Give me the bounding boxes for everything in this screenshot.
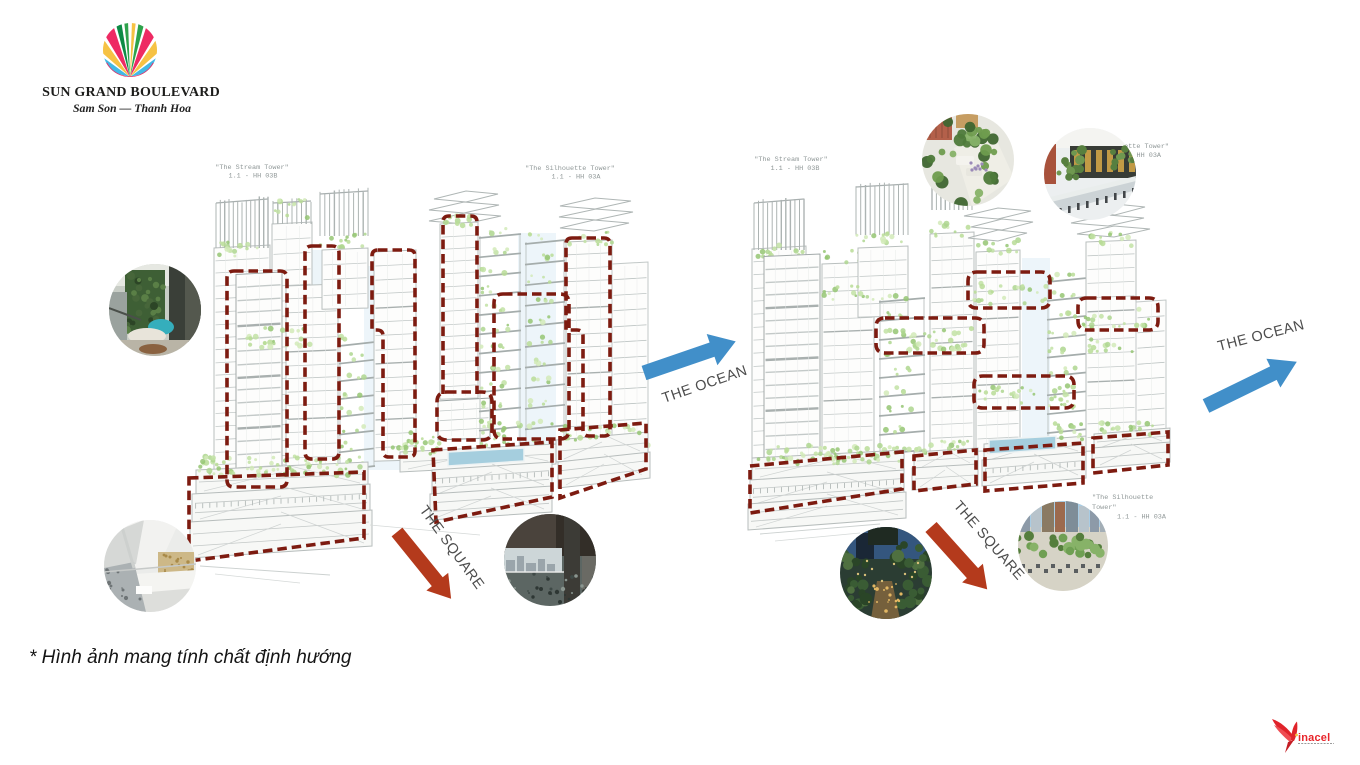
svg-text:Sam Son — Thanh Hoa: Sam Son — Thanh Hoa xyxy=(73,101,191,115)
svg-text:"The Silhouette: "The Silhouette xyxy=(1092,494,1153,502)
svg-text:SUN GRAND BOULEVARD: SUN GRAND BOULEVARD xyxy=(42,85,220,100)
svg-text:1.1 - HH 03A: 1.1 - HH 03A xyxy=(552,174,602,182)
svg-text:1.1 - HH 03A: 1.1 - HH 03A xyxy=(1117,514,1167,522)
svg-text:1.1 - HH 03B: 1.1 - HH 03B xyxy=(771,165,820,173)
svg-text:Tower": Tower" xyxy=(1092,504,1116,512)
svg-text:1.1 - HH 03B: 1.1 - HH 03B xyxy=(229,173,278,181)
svg-text:inacel: inacel xyxy=(1298,732,1330,744)
svg-text:"The Stream Tower": "The Stream Tower" xyxy=(754,156,827,164)
svg-text:* Hình ảnh mang tính chất định: * Hình ảnh mang tính chất định hướng xyxy=(29,647,352,668)
svg-text:"The Stream Tower": "The Stream Tower" xyxy=(215,164,288,172)
svg-text:"The Silhouette Tower": "The Silhouette Tower" xyxy=(525,165,615,173)
